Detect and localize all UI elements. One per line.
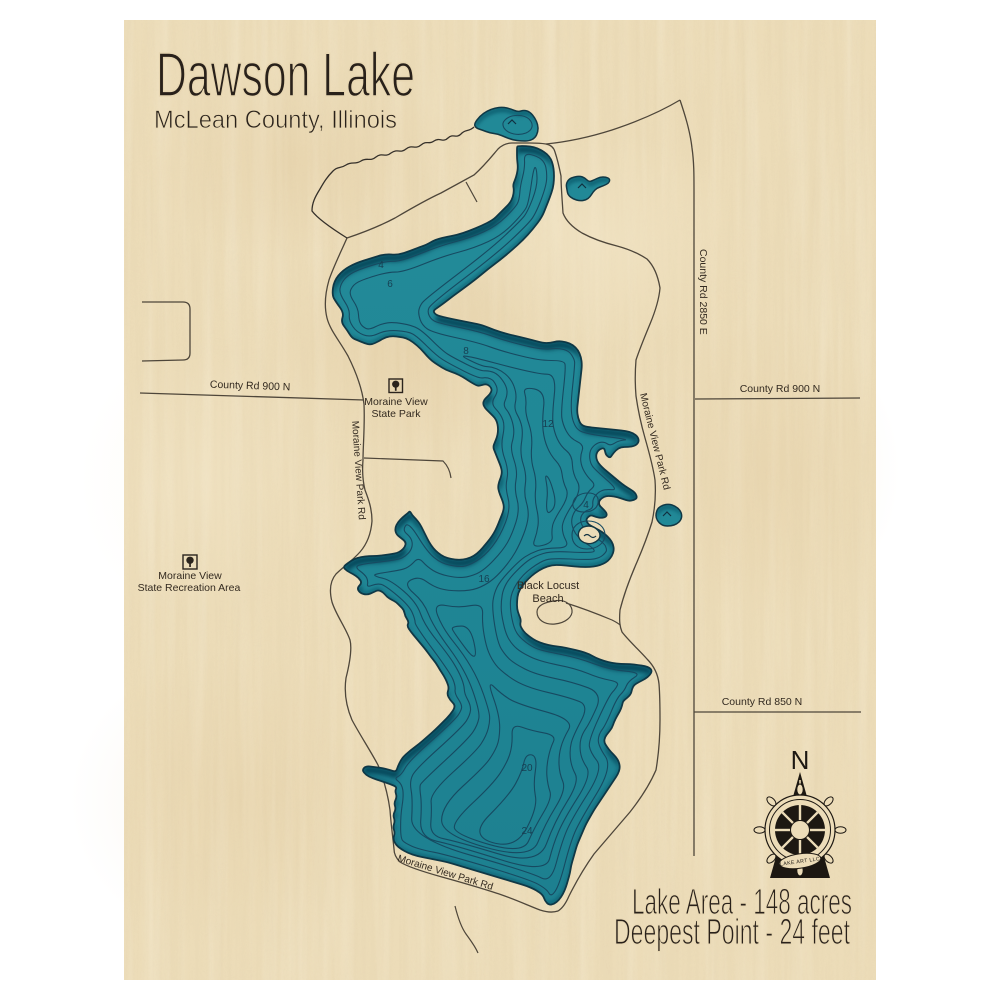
svg-text:McLean County, Illinois: McLean County, Illinois xyxy=(154,106,397,134)
svg-text:6: 6 xyxy=(387,279,393,290)
svg-text:Beach: Beach xyxy=(532,593,563,605)
svg-text:4: 4 xyxy=(583,500,589,511)
svg-text:16: 16 xyxy=(478,574,490,585)
svg-text:Black Locust: Black Locust xyxy=(517,580,579,592)
svg-text:4: 4 xyxy=(378,260,384,271)
svg-text:County Rd 2850 E: County Rd 2850 E xyxy=(697,249,709,335)
svg-text:County Rd 850 N: County Rd 850 N xyxy=(722,696,803,708)
svg-text:Deepest Point - 24 feet: Deepest Point - 24 feet xyxy=(614,911,850,952)
svg-text:County Rd 900 N: County Rd 900 N xyxy=(740,383,821,395)
svg-text:Moraine View: Moraine View xyxy=(158,570,222,582)
svg-text:Moraine View: Moraine View xyxy=(364,396,428,408)
svg-text:24: 24 xyxy=(521,826,533,837)
svg-text:N: N xyxy=(791,745,810,775)
svg-text:State Park: State Park xyxy=(371,408,421,420)
svg-text:12: 12 xyxy=(542,419,554,430)
svg-text:State Recreation Area: State Recreation Area xyxy=(138,582,241,594)
svg-text:20: 20 xyxy=(521,763,533,774)
svg-text:8: 8 xyxy=(463,346,469,357)
svg-text:Dawson Lake: Dawson Lake xyxy=(156,41,415,110)
